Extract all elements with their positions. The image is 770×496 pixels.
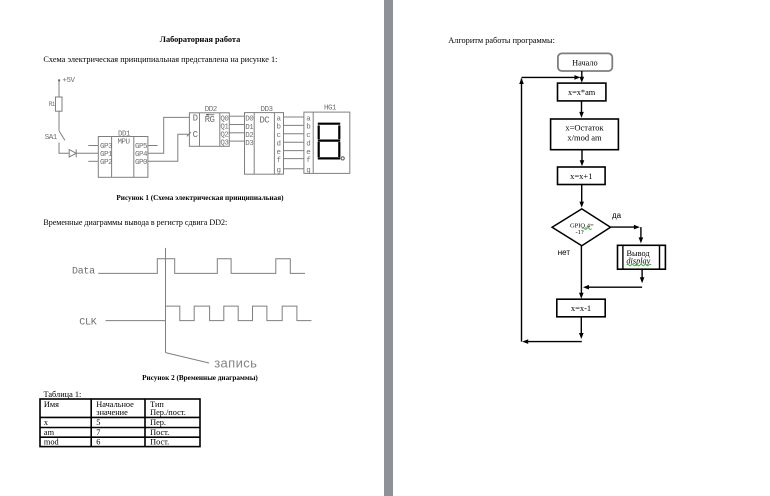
svg-text:b: b: [306, 124, 310, 132]
svg-text:R1: R1: [49, 101, 56, 108]
svg-text:f: f: [277, 157, 282, 165]
svg-text:x=Остаток: x=Остаток: [565, 123, 604, 133]
svg-text:d: d: [277, 141, 281, 149]
svg-text:g: g: [277, 167, 281, 175]
svg-text:GP3: GP3: [100, 143, 113, 151]
svg-text:x=x+1: x=x+1: [570, 171, 592, 181]
svg-text:Q2: Q2: [220, 132, 228, 140]
svg-text:b: b: [277, 124, 281, 132]
svg-text:GP2: GP2: [100, 159, 112, 167]
svg-text:D2: D2: [245, 132, 253, 140]
svg-text:SA1: SA1: [45, 134, 58, 142]
svg-text:DC: DC: [259, 116, 270, 126]
svg-text:CLK: CLK: [79, 318, 96, 329]
svg-text:RG: RG: [205, 115, 215, 125]
svg-text:D3: D3: [245, 140, 254, 148]
svg-text:c: c: [306, 132, 310, 140]
svg-text:Q0: Q0: [220, 115, 229, 123]
svg-text:Data: Data: [72, 267, 95, 278]
svg-text:f: f: [306, 157, 311, 165]
svg-text:display: display: [626, 256, 650, 265]
svg-text:GP5: GP5: [135, 143, 148, 151]
svg-text:GP1: GP1: [100, 151, 113, 159]
svg-text:D: D: [193, 114, 198, 124]
svg-text:GP0: GP0: [135, 159, 148, 167]
svg-text:x/mod am: x/mod am: [567, 133, 602, 143]
svg-text:да: да: [612, 211, 622, 220]
svg-text:x=x*am: x=x*am: [568, 88, 596, 97]
svg-text:c: c: [277, 132, 281, 140]
svg-text:e: e: [306, 149, 310, 157]
svg-text:D1: D1: [245, 124, 254, 132]
svg-text:HG1: HG1: [324, 105, 337, 113]
svg-text:DD3: DD3: [261, 106, 274, 114]
svg-text:DD2: DD2: [205, 106, 217, 114]
svg-text:a: a: [306, 115, 311, 123]
svg-text:D0: D0: [245, 116, 254, 124]
svg-text:Q1: Q1: [220, 124, 229, 132]
svg-text:+5V: +5V: [63, 77, 76, 85]
svg-text:Начало: Начало: [572, 58, 598, 67]
svg-text:нет: нет: [558, 248, 571, 257]
svg-text:запись: запись: [214, 356, 257, 371]
svg-text:C: C: [193, 130, 199, 140]
svg-text:GP4: GP4: [135, 151, 148, 159]
svg-text:Q3: Q3: [220, 140, 229, 148]
svg-text:e: e: [277, 149, 281, 157]
svg-text:MPU: MPU: [118, 138, 130, 146]
svg-text:DD1: DD1: [118, 130, 131, 138]
svg-text:d: d: [306, 141, 310, 149]
svg-text:a: a: [277, 115, 282, 123]
svg-text:-1?: -1?: [575, 229, 583, 236]
svg-text:x=x-1: x=x-1: [571, 303, 591, 313]
svg-text:g: g: [306, 167, 310, 175]
